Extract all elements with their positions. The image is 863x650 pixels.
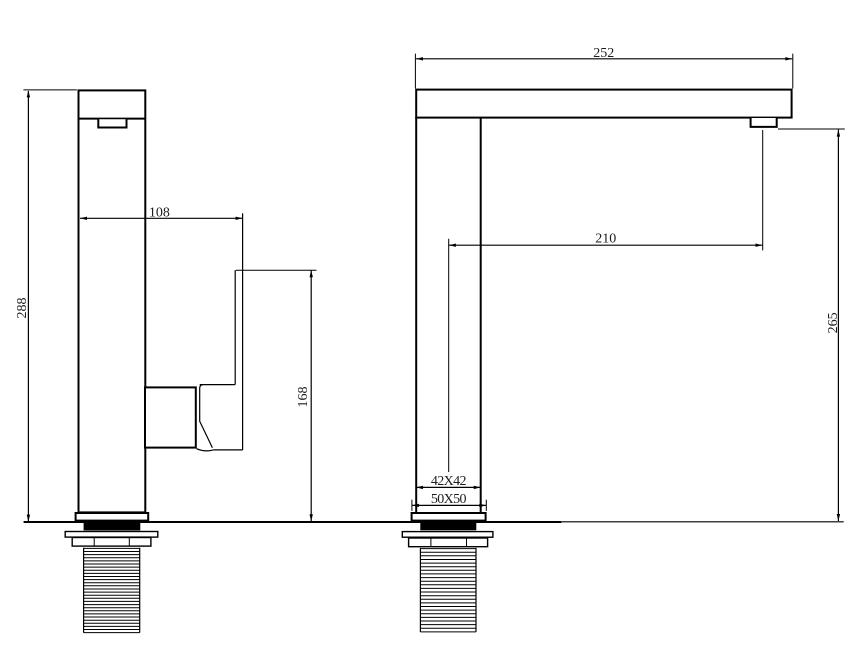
svg-text:108: 108 xyxy=(149,206,170,221)
svg-text:288: 288 xyxy=(15,298,30,319)
svg-text:50X50: 50X50 xyxy=(431,492,467,507)
svg-text:252: 252 xyxy=(593,46,614,61)
svg-text:210: 210 xyxy=(595,231,616,246)
svg-text:265: 265 xyxy=(826,312,841,333)
svg-text:168: 168 xyxy=(296,387,311,408)
svg-text:42X42: 42X42 xyxy=(431,474,467,489)
